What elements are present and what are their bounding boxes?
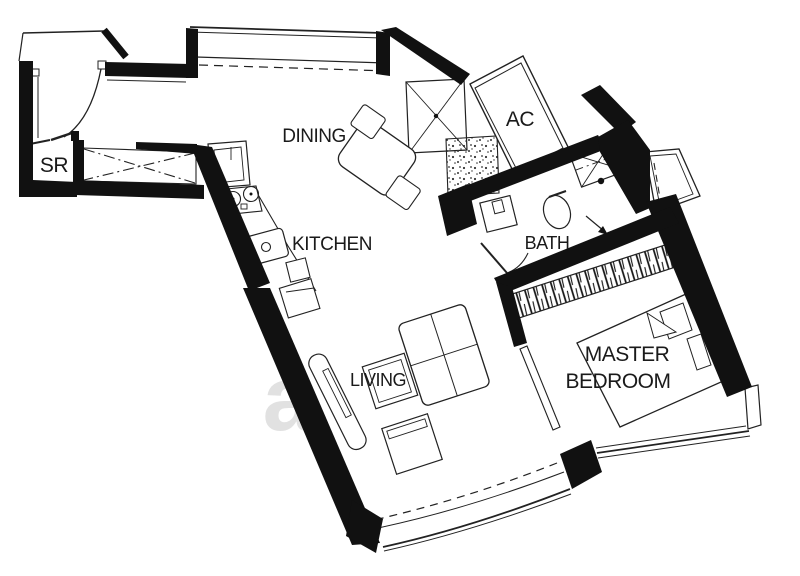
floor-plan-svg: a <box>0 0 800 576</box>
wall-sr-cap <box>71 131 79 141</box>
floor-plan: a <box>0 0 800 576</box>
room-label-kitchen: KITCHEN <box>292 234 372 255</box>
room-label-bath: BATH <box>525 233 570 253</box>
shower-head-icon <box>598 178 604 184</box>
room-label-bedroom: BEDROOM <box>565 370 670 393</box>
wall-window-pillar-left <box>186 28 198 78</box>
shelter-closet <box>83 148 196 184</box>
room-label-sr: SR <box>40 154 69 177</box>
kitchen-cabinet <box>286 258 310 282</box>
room-label-ac: AC <box>506 108 535 131</box>
background <box>0 0 800 576</box>
room-label-living: LIVING <box>350 370 406 390</box>
wall-sr-right <box>73 140 84 183</box>
bath-sink <box>480 196 517 233</box>
wall-entry-band <box>105 62 190 78</box>
room-label-dining: DINING <box>282 126 346 147</box>
room-label-master: MASTER <box>585 343 670 366</box>
wall-window-pillar-right <box>376 31 390 76</box>
